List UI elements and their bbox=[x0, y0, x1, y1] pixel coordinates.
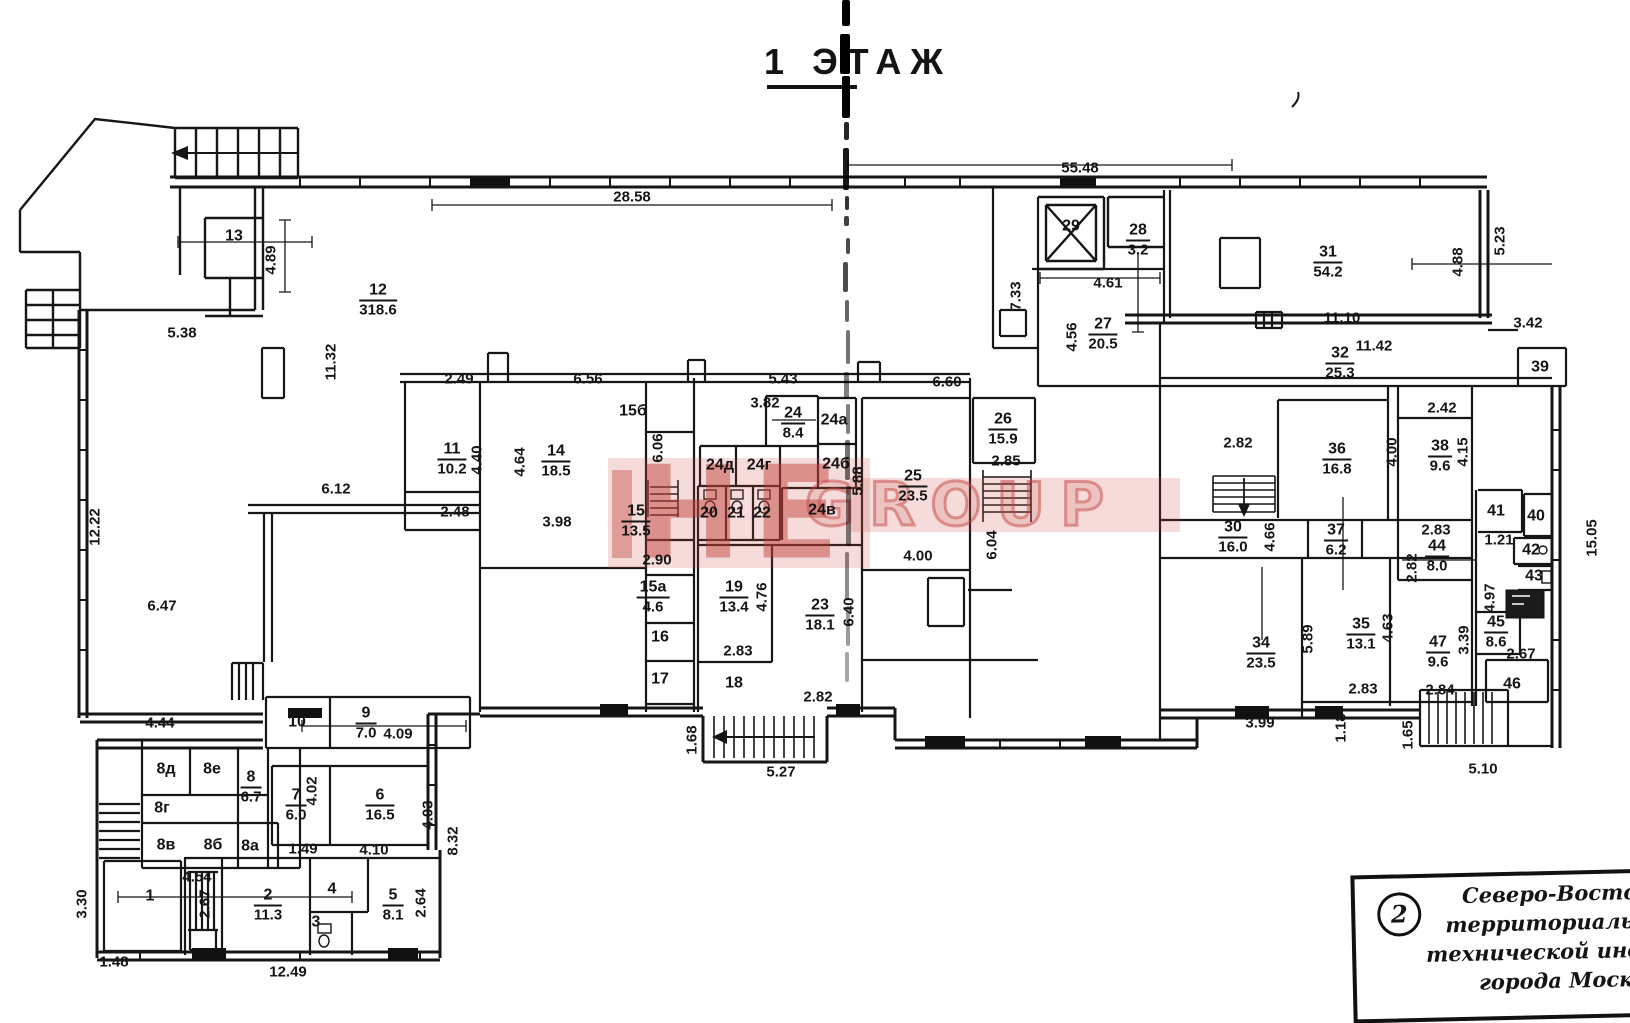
floor-plan: НЕ GROUP 1 ЭТАЖ 12 318.6 11 10.2 14 18.5… bbox=[0, 0, 1630, 996]
bti-stamp: 2 Северо-Восточно территориальное б техн… bbox=[1350, 869, 1630, 1023]
stamp-line-1: Северо-Восточно bbox=[1407, 875, 1630, 911]
stamp-text: Северо-Восточно территориальное б технич… bbox=[1407, 875, 1630, 998]
fold-line-artifact bbox=[0, 0, 1630, 996]
